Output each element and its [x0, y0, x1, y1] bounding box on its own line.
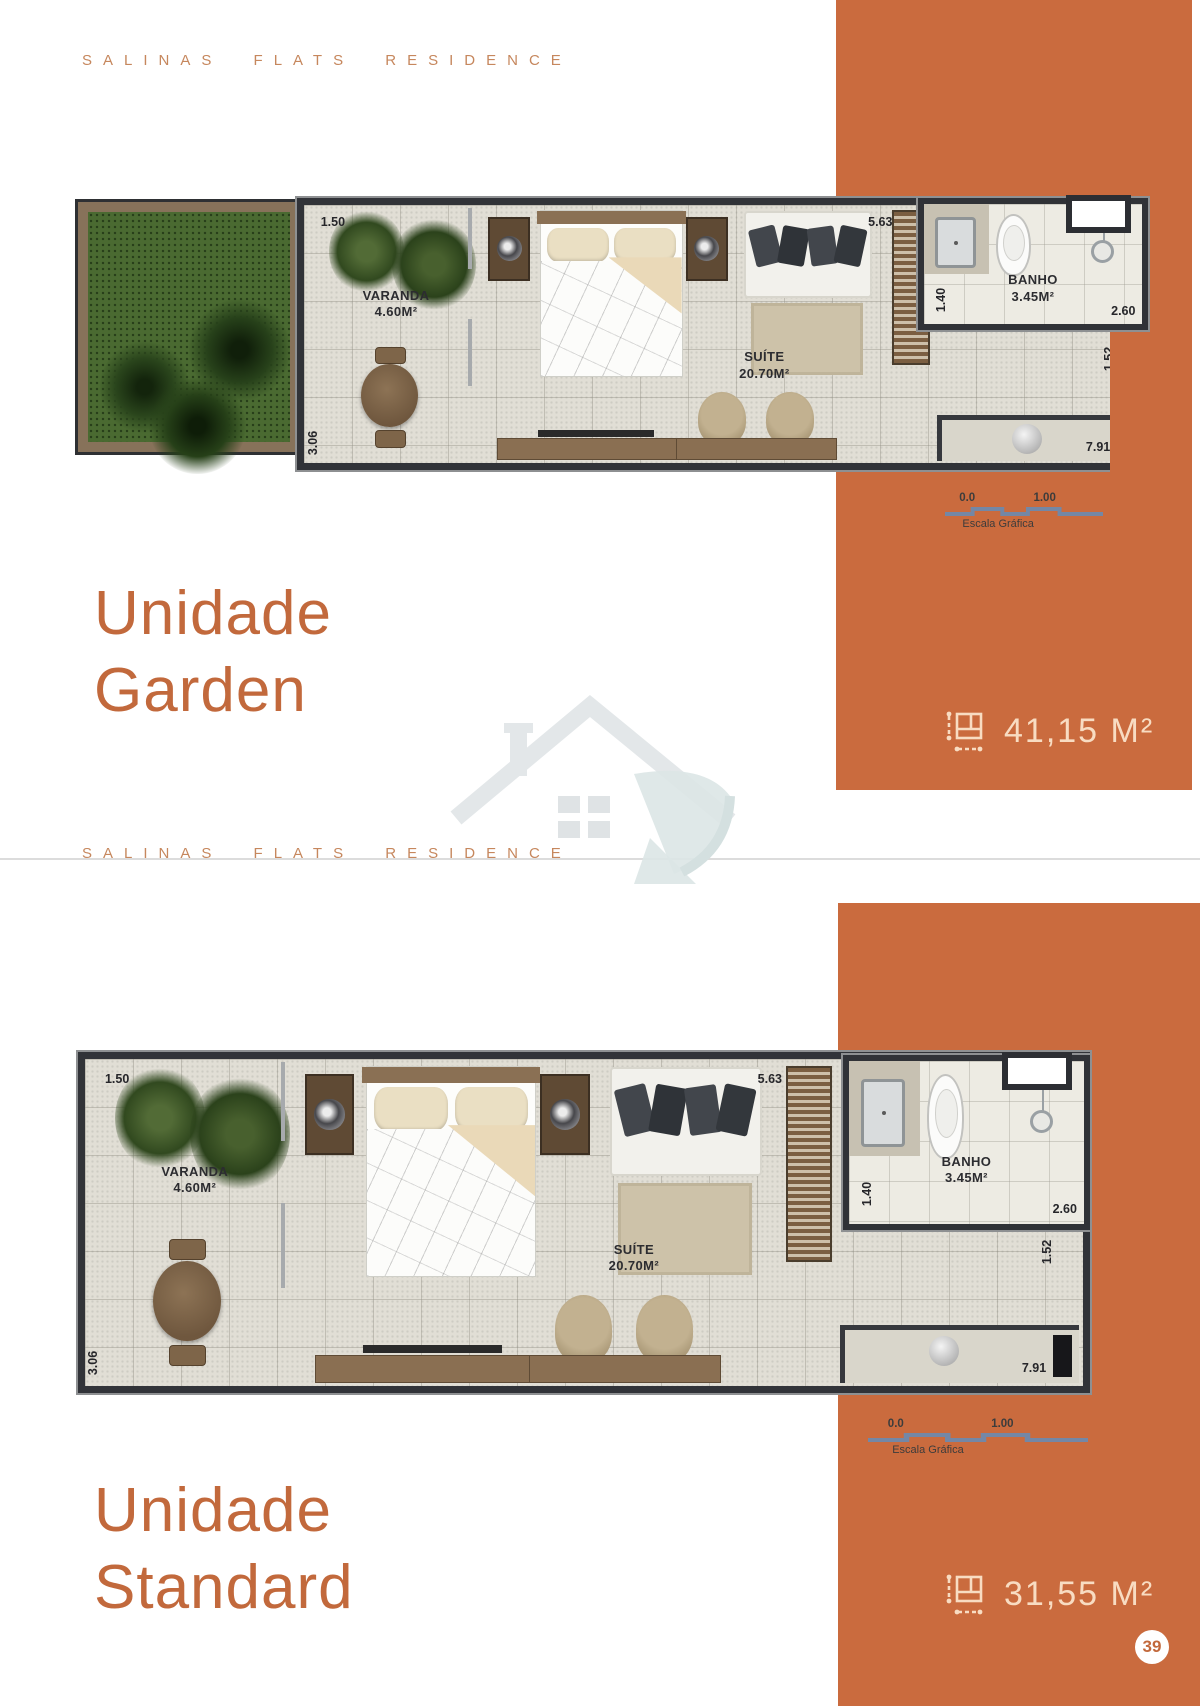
cushion: [648, 1083, 688, 1136]
garden-lawn: [78, 202, 300, 452]
suite-label: SUÍTE 20.70M²: [710, 349, 819, 382]
scale-caption: Escala Gráfica: [892, 1444, 1088, 1456]
palm-tree: [149, 378, 246, 475]
drain: [882, 1111, 886, 1115]
title-line: Standard: [94, 1549, 354, 1626]
lamp-icon: [314, 1099, 344, 1129]
varanda-label: VARANDA 4.60M²: [120, 1164, 270, 1197]
doorway: [1053, 1335, 1072, 1377]
chair: [375, 430, 407, 447]
chair: [375, 347, 407, 364]
scale-caption: Escala Gráfica: [962, 518, 1103, 530]
bathroom-window: [1066, 195, 1131, 233]
suite-label: SUÍTE 20.70M²: [569, 1242, 699, 1275]
tv-console: [497, 438, 700, 461]
desk: [529, 1355, 721, 1383]
cushion: [833, 224, 868, 267]
title-line: Unidade: [94, 575, 332, 652]
unit-area-value: 31,55 M²: [1004, 1575, 1154, 1614]
suite-area: 20.70M²: [569, 1258, 699, 1274]
dim-label: 3.06: [306, 431, 320, 455]
toilet-lid: [935, 1089, 959, 1138]
dim-label: 5.63: [868, 215, 892, 229]
bed: [540, 210, 683, 377]
dim-label: 1.40: [860, 1182, 874, 1206]
dim-label: 2.60: [1053, 1202, 1077, 1216]
partition-wall: [281, 1203, 285, 1288]
partition-wall: [468, 319, 472, 386]
varanda-name: VARANDA: [120, 1164, 270, 1180]
dim-label: 3.06: [86, 1350, 100, 1374]
closet-shelves: [786, 1066, 832, 1262]
pillow: [374, 1087, 448, 1131]
scale-line: [945, 505, 1103, 517]
varanda-area: 4.60M²: [333, 304, 459, 320]
dim-label: 2.60: [1111, 304, 1135, 318]
nightstand: [488, 217, 530, 282]
lamp-icon: [497, 236, 522, 261]
sink: [935, 217, 976, 267]
banho-name: BANHO: [912, 1154, 1020, 1170]
sofa: [610, 1067, 762, 1176]
shower-head-icon: [1030, 1110, 1053, 1133]
tv: [363, 1345, 502, 1354]
headboard: [537, 211, 686, 224]
toilet: [996, 214, 1031, 276]
shower-sphere: [1012, 424, 1042, 454]
pillow: [455, 1087, 529, 1131]
toilet: [927, 1074, 965, 1159]
dim-label: 1.50: [105, 1072, 129, 1086]
tv-console: [315, 1355, 557, 1383]
scale-start: 0.0: [888, 1418, 904, 1430]
dim-label: 7.91: [1022, 1361, 1046, 1375]
suite-name: SUÍTE: [569, 1242, 699, 1258]
suite-area: 20.70M²: [710, 366, 819, 382]
page-number-badge: 39: [1135, 1630, 1169, 1664]
brochure-page: SALINAS FLATS RESIDENCE 1.50 VARANDA 4.6…: [0, 0, 1200, 1706]
scale-start: 0.0: [959, 492, 975, 504]
brand-header-bottom: SALINAS FLATS RESIDENCE: [82, 845, 572, 862]
pillow: [547, 228, 609, 263]
area-row-garden: 41,15 M²: [944, 708, 1154, 754]
toilet-lid: [1003, 225, 1025, 261]
banho-label: BANHO 3.45M²: [912, 1154, 1020, 1187]
desk-chairs: [693, 386, 819, 445]
scale-end: 1.00: [1033, 492, 1055, 504]
varanda-name: VARANDA: [333, 288, 459, 304]
round-table: [153, 1261, 221, 1341]
chair: [169, 1239, 206, 1260]
lamp-icon: [550, 1099, 580, 1129]
scale-end: 1.00: [991, 1418, 1013, 1430]
balcony-table: [361, 347, 418, 448]
nightstand: [686, 217, 728, 282]
desk-chairs: [549, 1288, 699, 1363]
dim-label: 5.63: [758, 1072, 782, 1086]
tv: [538, 430, 655, 437]
dim-label: 1.40: [935, 288, 949, 312]
floorplan-standard: 1.50 VARANDA 4.60M² 3.06: [78, 1052, 1090, 1393]
armchair: [555, 1295, 612, 1363]
scale-line: [868, 1431, 1088, 1443]
title-line: Garden: [94, 652, 332, 729]
section-title-garden: Unidade Garden: [94, 575, 332, 729]
sofa: [744, 211, 872, 298]
bathroom-window: [1002, 1052, 1073, 1090]
title-line: Unidade: [94, 1472, 354, 1549]
varanda-label: VARANDA 4.60M²: [333, 288, 459, 321]
desk: [676, 438, 837, 461]
cushion: [777, 225, 810, 267]
sink: [861, 1079, 906, 1147]
floor-area-icon: [944, 708, 986, 754]
varanda-area: 4.60M²: [120, 1180, 270, 1196]
entry-hall: 7.91: [937, 415, 1138, 461]
banho-name: BANHO: [983, 272, 1083, 288]
shower-head-icon: [1091, 240, 1114, 263]
bathroom: BANHO 3.45M² 1.40 2.60: [843, 1055, 1090, 1230]
drain: [954, 241, 958, 245]
plan-step-mask: [1110, 332, 1150, 482]
scale-bar: 0.0 1.00 Escala Gráfica: [945, 492, 1103, 530]
chair: [169, 1345, 206, 1366]
entry-hall: 7.91: [840, 1325, 1080, 1384]
dim-label: 7.91: [1086, 440, 1110, 454]
headboard: [362, 1067, 540, 1084]
round-table: [361, 364, 418, 427]
balcony-table: [153, 1239, 221, 1367]
bathroom: BANHO 3.45M² 1.40 2.60: [918, 198, 1148, 330]
cushion: [715, 1083, 757, 1137]
bed: [366, 1066, 536, 1277]
unit-area-value: 41,15 M²: [1004, 712, 1154, 751]
shower-sphere: [929, 1336, 959, 1366]
brand-header-top: SALINAS FLATS RESIDENCE: [82, 52, 572, 69]
dim-label: 1.52: [1040, 1240, 1054, 1264]
floorplan-garden: 1.50 VARANDA 4.60M² 3.06: [75, 192, 1148, 480]
partition-wall: [468, 208, 472, 270]
area-row-standard: 31,55 M²: [944, 1571, 1154, 1617]
nightstand: [305, 1074, 355, 1156]
floor-area-icon: [944, 1571, 986, 1617]
partition-wall: [281, 1062, 285, 1140]
armchair: [636, 1295, 693, 1363]
lamp-icon: [694, 236, 719, 261]
dim-label: 1.50: [321, 215, 345, 229]
nightstand: [540, 1074, 590, 1156]
suite-name: SUÍTE: [710, 349, 819, 365]
banho-area: 3.45M²: [983, 289, 1083, 305]
banho-area: 3.45M²: [912, 1170, 1020, 1186]
scale-bar: 0.0 1.00 Escala Gráfica: [868, 1418, 1088, 1456]
pillow: [614, 228, 676, 263]
section-title-standard: Unidade Standard: [94, 1472, 354, 1626]
banho-label: BANHO 3.45M²: [983, 272, 1083, 305]
